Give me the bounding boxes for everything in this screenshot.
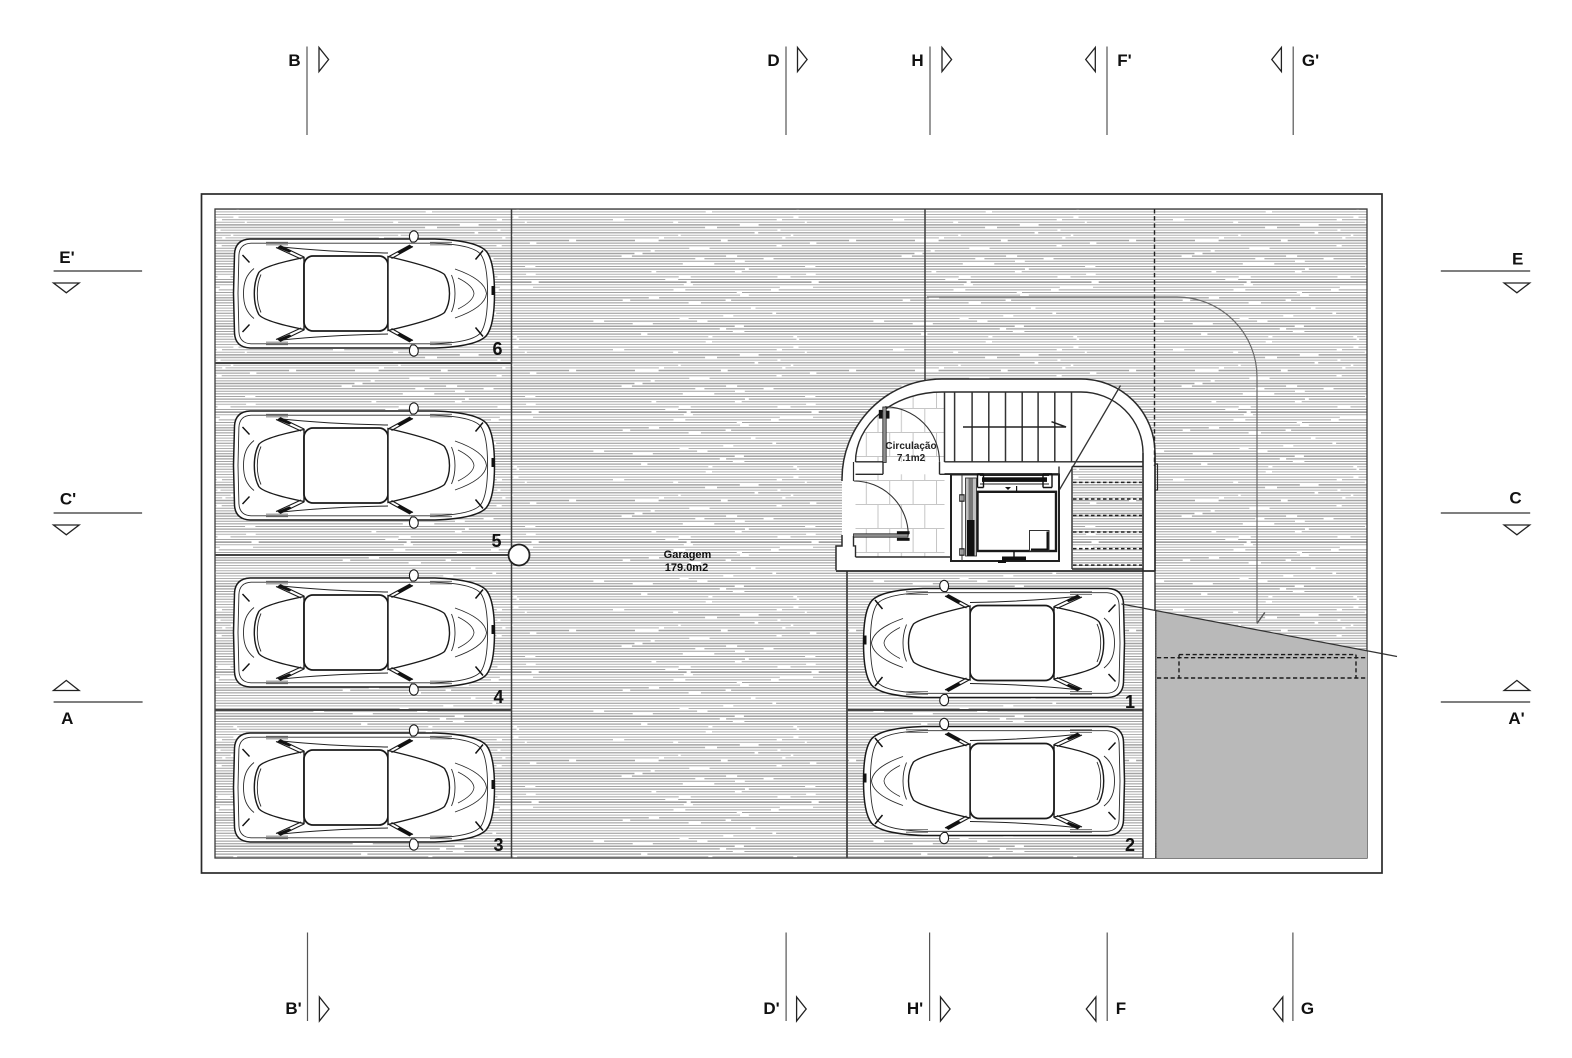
svg-text:G: G	[1301, 999, 1314, 1018]
svg-text:7.1m2: 7.1m2	[897, 453, 926, 464]
svg-text:E': E'	[59, 248, 74, 267]
svg-text:4: 4	[493, 687, 503, 707]
svg-text:B: B	[288, 51, 300, 70]
svg-text:C': C'	[60, 490, 76, 509]
svg-text:A: A	[61, 709, 73, 728]
svg-text:C: C	[1509, 489, 1521, 508]
svg-text:B': B'	[285, 999, 301, 1018]
svg-text:5: 5	[491, 531, 501, 551]
svg-text:6: 6	[492, 339, 502, 359]
svg-text:F': F'	[1117, 51, 1131, 70]
svg-text:179.0m2: 179.0m2	[665, 562, 708, 574]
svg-text:Circulação: Circulação	[885, 441, 936, 452]
svg-text:3: 3	[493, 835, 503, 855]
svg-text:A': A'	[1508, 709, 1524, 728]
svg-text:G': G'	[1302, 51, 1319, 70]
svg-text:H': H'	[907, 999, 923, 1018]
svg-text:Garagem: Garagem	[664, 549, 712, 561]
svg-text:H: H	[911, 51, 923, 70]
svg-text:1: 1	[1125, 692, 1135, 712]
svg-text:D': D'	[763, 999, 779, 1018]
svg-text:2: 2	[1125, 835, 1135, 855]
svg-text:F: F	[1116, 999, 1126, 1018]
svg-text:D: D	[767, 51, 779, 70]
svg-text:E: E	[1512, 250, 1523, 269]
